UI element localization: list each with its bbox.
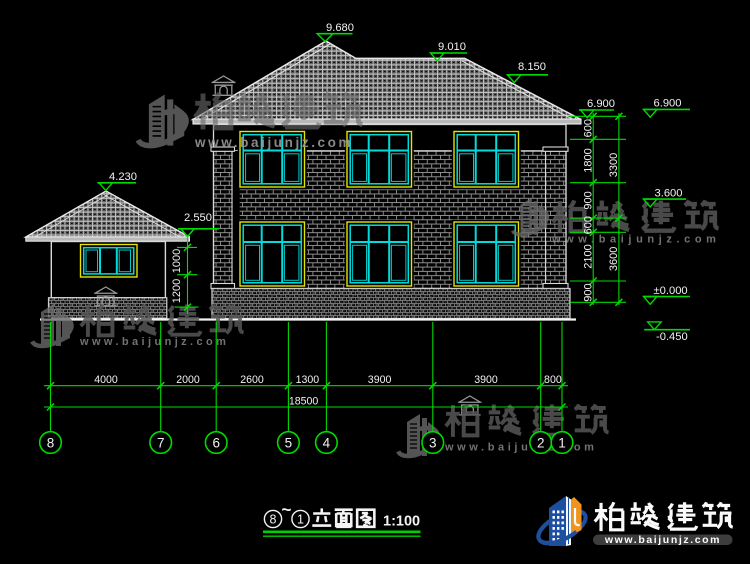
svg-text:9.010: 9.010 [438,41,466,53]
svg-text:5: 5 [285,435,293,450]
svg-text:600: 600 [583,119,595,137]
svg-text:4.230: 4.230 [109,171,137,183]
svg-text:8: 8 [47,435,55,450]
svg-text:1200: 1200 [171,279,183,303]
svg-text:3900: 3900 [474,374,498,386]
svg-text:18500: 18500 [289,396,319,408]
svg-text:2600: 2600 [240,374,264,386]
svg-text:±0.000: ±0.000 [654,285,688,297]
svg-text:www.baijunjz.com: www.baijunjz.com [604,534,721,546]
svg-text:3600: 3600 [608,247,620,271]
svg-text:www.baijunjz.com: www.baijunjz.com [551,234,721,246]
svg-text:3: 3 [429,435,437,450]
svg-text:3300: 3300 [608,153,620,177]
svg-text:900: 900 [583,191,595,209]
svg-text:1:100: 1:100 [383,514,420,530]
svg-text:1000: 1000 [171,249,183,273]
svg-text:4000: 4000 [94,374,118,386]
svg-text:4: 4 [323,435,331,450]
svg-text:1300: 1300 [296,374,320,386]
svg-text:2100: 2100 [583,244,595,268]
svg-text:2.550: 2.550 [184,212,212,224]
svg-text:www.baijunjz.com: www.baijunjz.com [444,442,598,454]
svg-text:www.baijunjz.com: www.baijunjz.com [194,135,353,150]
svg-text:3900: 3900 [368,374,392,386]
svg-text:800: 800 [544,374,562,386]
svg-text:2000: 2000 [176,374,200,386]
svg-text:www.baijunjz.com: www.baijunjz.com [79,336,229,348]
svg-text:3.600: 3.600 [655,188,683,200]
svg-text:-0.450: -0.450 [656,331,688,343]
svg-text:9.680: 9.680 [326,22,354,34]
svg-text:8.150: 8.150 [518,61,546,73]
svg-text:2: 2 [537,435,545,450]
svg-text:900: 900 [583,283,595,301]
svg-text:~: ~ [282,500,292,519]
svg-text:6.900: 6.900 [587,98,615,110]
svg-text:6.900: 6.900 [654,98,682,110]
svg-text:1: 1 [297,513,304,527]
svg-text:1800: 1800 [583,148,595,172]
svg-text:1: 1 [558,435,566,450]
svg-text:8: 8 [270,513,277,527]
svg-text:6: 6 [212,435,220,450]
svg-text:7: 7 [157,435,165,450]
svg-text:600: 600 [583,216,595,234]
